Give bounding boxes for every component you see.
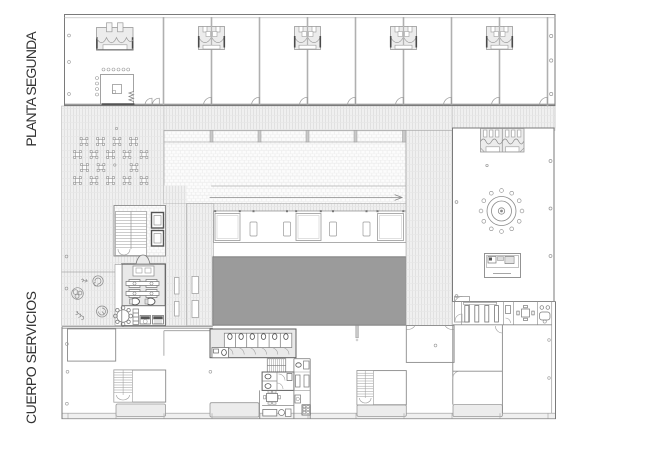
svg-text:CUERPO SERVICIOS: CUERPO SERVICIOS	[23, 291, 39, 424]
svg-text:PLANTA SEGUNDA: PLANTA SEGUNDA	[23, 31, 39, 147]
